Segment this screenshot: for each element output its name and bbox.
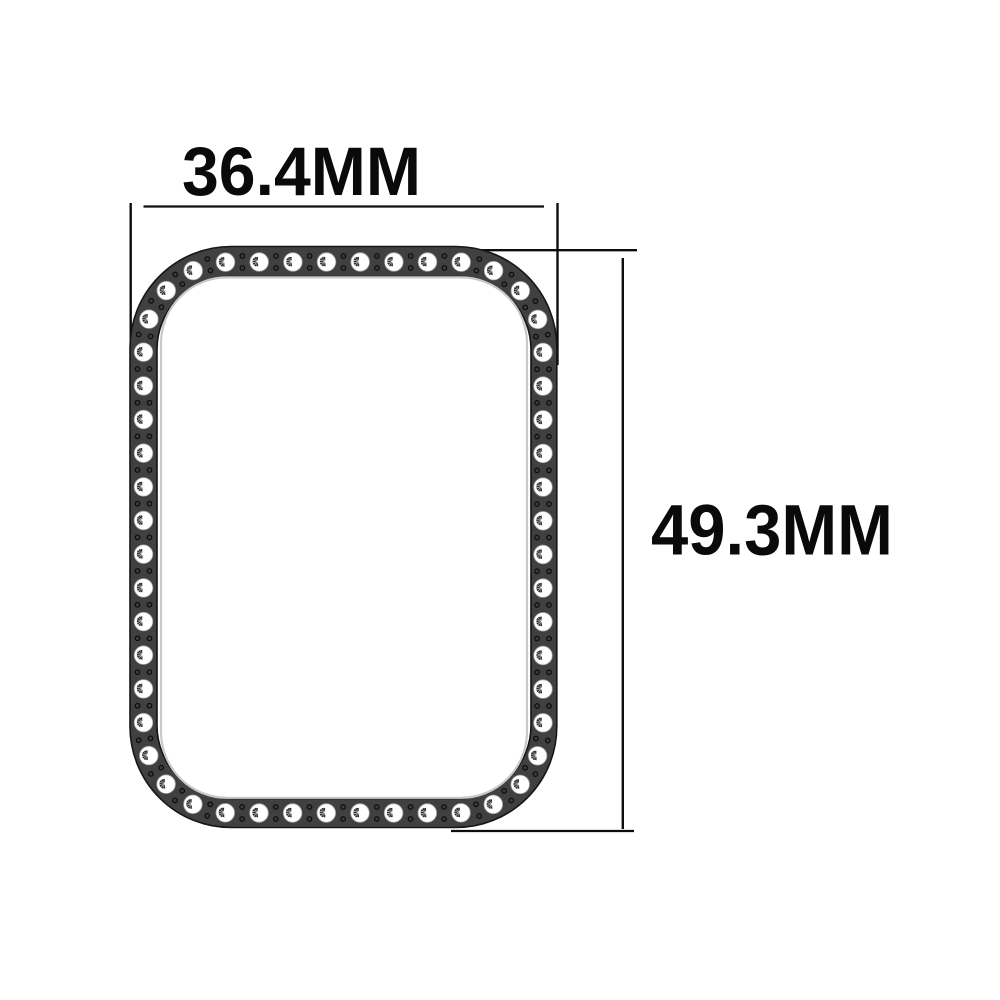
svg-text:36.4MM: 36.4MM xyxy=(182,133,421,210)
svg-text:49.3MM: 49.3MM xyxy=(651,492,893,571)
